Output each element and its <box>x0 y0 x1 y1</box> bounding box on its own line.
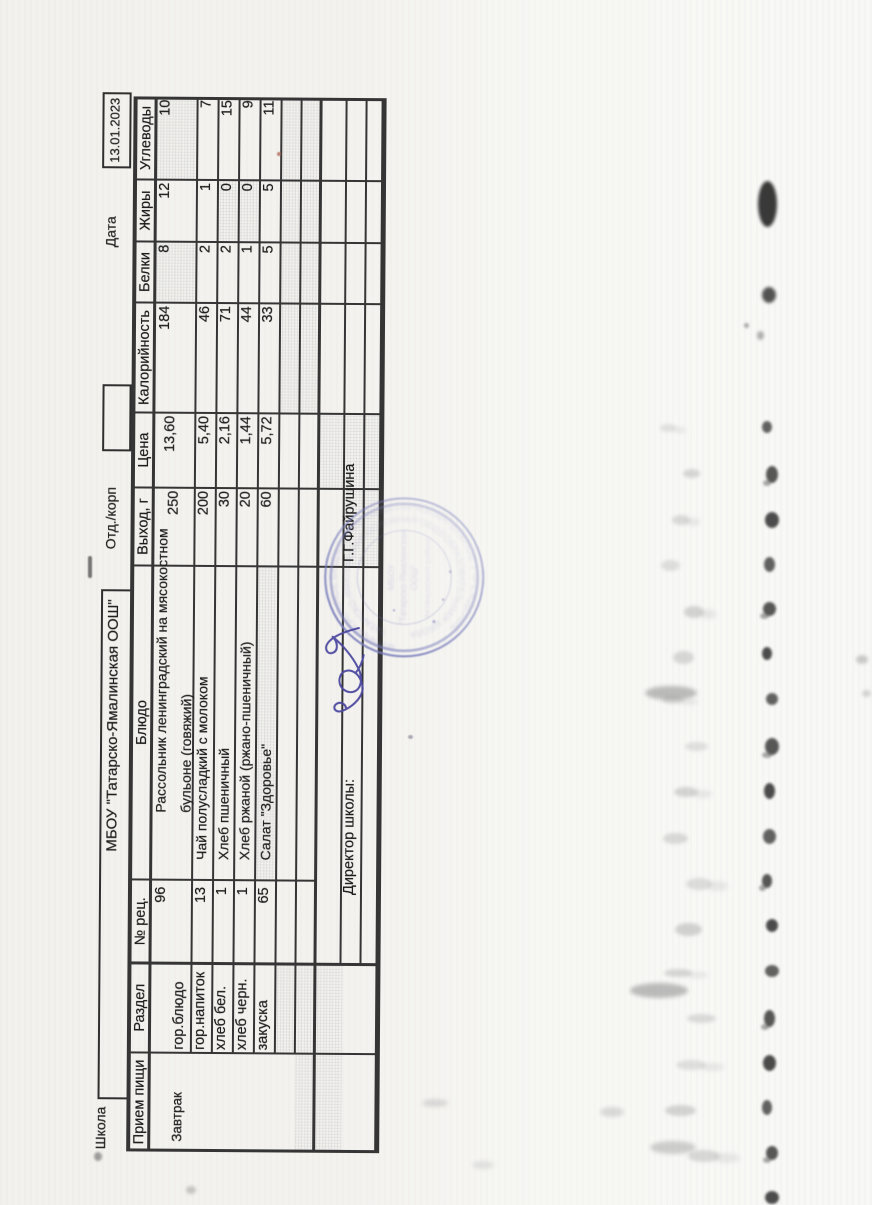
svg-text:ООШ": ООШ" <box>409 565 419 591</box>
svg-text:Актанышского района: Актанышского района <box>423 536 433 618</box>
svg-text:"Татарско-Ямалинская: "Татарско-Ямалинская <box>398 530 409 625</box>
svg-text:МБОУ: МБОУ <box>386 564 396 590</box>
